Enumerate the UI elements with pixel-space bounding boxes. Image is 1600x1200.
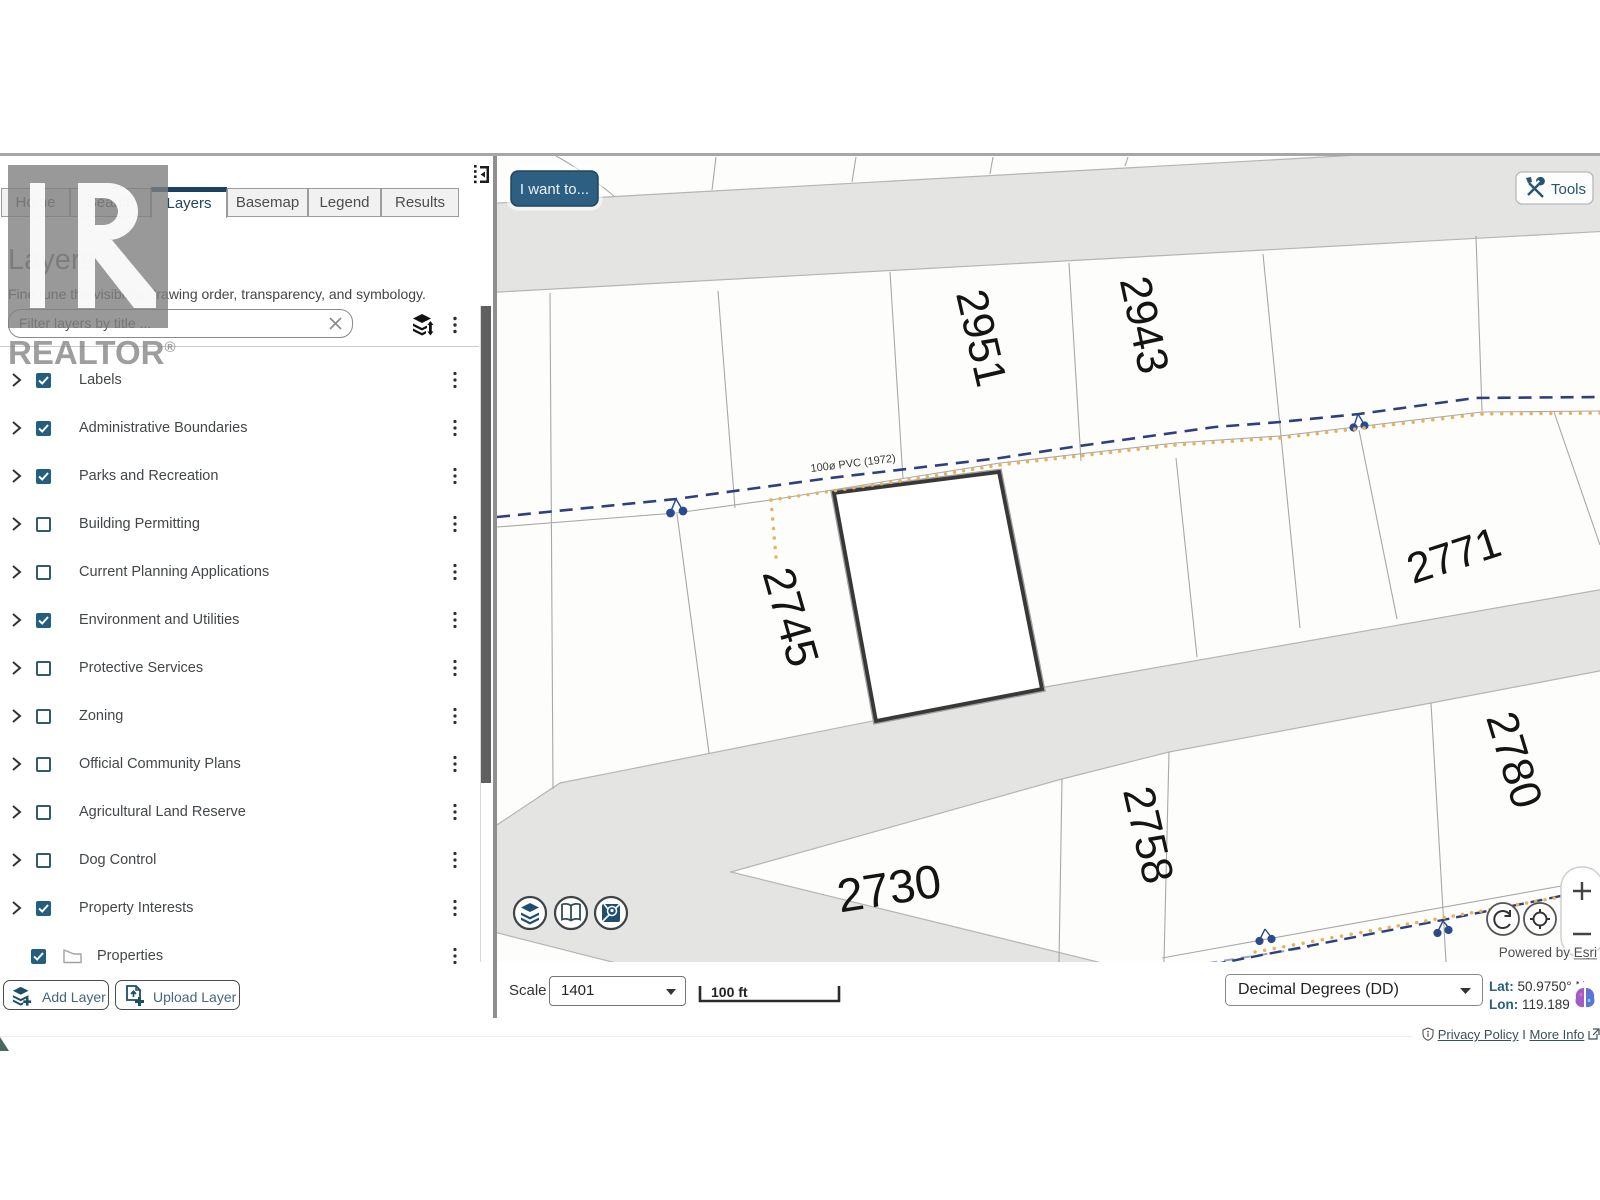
svg-text:Tools: Tools (1551, 181, 1586, 198)
svg-text:I want to...: I want to... (520, 181, 589, 198)
svg-text:100 ft: 100 ft (711, 984, 748, 1000)
svg-text:Powered by Esri: Powered by Esri (1499, 945, 1597, 960)
